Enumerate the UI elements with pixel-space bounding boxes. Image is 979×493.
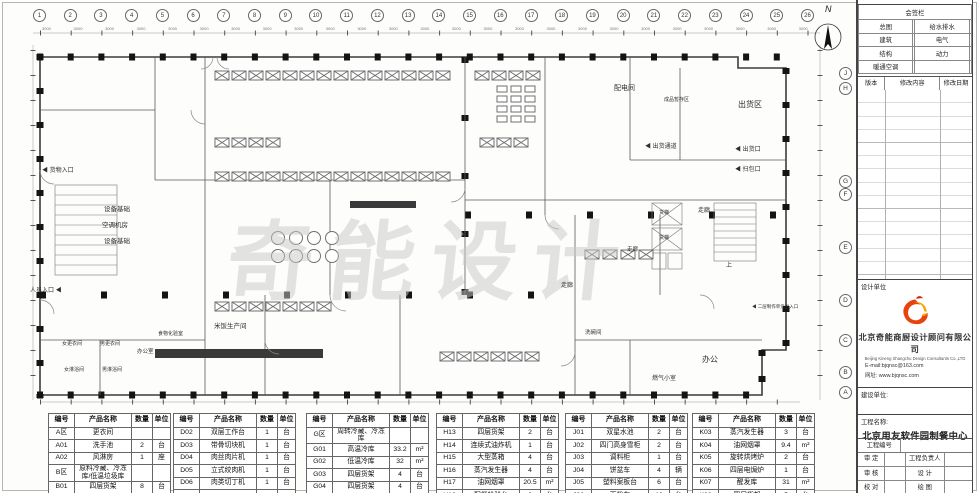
grid-bubble: 22 [678,9,691,22]
item-code: D06 [174,477,200,490]
design-unit-label: 设计单位 [858,280,972,291]
item-name: 高温冷库 [333,444,390,457]
grid-bubble: 12 [371,9,384,22]
item-unit: m² [411,456,429,469]
table-row: J06面粉车10台 [566,490,688,493]
grid-bubble: 2 [64,9,77,22]
item-unit: 台 [541,465,559,478]
item-name: 双星水池 [592,427,649,440]
item-qty: 4 [520,452,541,465]
project-label: 工程名称: [858,415,972,426]
item-code: D02 [174,427,200,440]
sign-label: 建筑 [859,33,913,47]
label-freight-lift-2: 货梯 [659,234,669,241]
dimension-label: 3000 [42,26,51,31]
col-header: 编号 [174,414,200,428]
sign-label [915,60,969,74]
equipment-table-5: 编号产品名称数量单位 J01双星水池2台J02四门高身雪柜2台J03调料柜1台J… [565,413,688,493]
label-equip-base-2: 设备基础 [104,235,130,245]
equipment-table-3: 编号产品名称数量单位 G区周转冷藏、冷冻库G01高温冷库33.2m²G02低温冷… [306,413,429,493]
item-unit: m² [797,440,815,453]
table-row: J05塑料案板台6台 [566,477,688,490]
item-unit: 台 [541,452,559,465]
item-unit: 台 [541,427,559,440]
col-header: 编号 [693,414,719,428]
item-qty [390,427,411,444]
item-name: 原料冷藏、冷冻库/低温垃圾库 [75,465,132,482]
table-row: D05立式绞肉机1台 [174,465,296,478]
item-name: 四层货架 [333,481,390,493]
stairs-upper [714,203,756,261]
item-name: 四门高身雪柜 [592,440,649,453]
item-qty: 3 [776,427,797,440]
item-unit: 台 [541,490,559,493]
table-row: A区更衣间 [49,427,171,440]
project-number-label: 工程编号 [858,439,901,452]
item-qty: 6 [649,477,670,490]
dimension-label: 3000 [168,26,177,31]
label-pickup-port: ◀ 扫包口 [735,164,761,173]
grid-bubble: 17 [525,9,538,22]
rev-col-date: 修改日期 [940,77,972,90]
stairs-lower [55,185,117,275]
item-name: 四层货架 [75,481,132,493]
design-label: 设 计 [906,467,945,482]
label-goods-entrance: ◀ 货物入口 [42,165,74,174]
item-unit: 台 [797,490,815,493]
item-name: 醒发库 [719,477,776,490]
table-row: H16蒸汽发生器4台 [437,465,559,478]
item-unit: 台 [670,440,688,453]
dimension-label: 3000 [326,26,335,31]
item-code: K08 [693,490,719,493]
item-name: 风淋房 [75,452,132,465]
table-row: J02四门高身雪柜2台 [566,440,688,453]
item-name: 饼盆车 [592,465,649,478]
grid-bubble: 18 [555,9,568,22]
dimension-label: 3000 [357,26,366,31]
label-shipping-port: ◀ 出货口 [735,144,761,153]
item-unit: 台 [670,427,688,440]
floor-plan-area: 奇能设计 12345678910111213141516171819202122… [0,0,855,410]
item-code: H16 [437,465,463,478]
item-unit: 台 [411,469,429,482]
dimension-label: 3000 [294,26,303,31]
item-qty [132,465,153,482]
col-header: 编号 [566,414,592,428]
item-qty: 1 [257,452,278,465]
item-qty: 32 [390,456,411,469]
item-qty: 8 [132,481,153,493]
item-unit: 台 [670,490,688,493]
sign-label: 动力 [915,47,969,61]
item-unit: 辆 [670,465,688,478]
label-men-shower: 男淋浴间 [102,366,122,373]
col-header: 编号 [307,414,333,428]
grid-letter-j: J [839,67,852,80]
item-code [174,490,200,493]
design-unit-section: 设计单位 北京奇能商厨设计顾问有限公司 Beijing Kineng Shang… [858,279,972,388]
dimension-label: 3000 [610,26,619,31]
item-name: 调料柜 [592,452,649,465]
item-qty: 2 [520,490,541,493]
col-header: 编号 [437,414,463,428]
item-unit: m² [411,444,429,457]
item-qty [132,427,153,440]
grid-letter-b: B [839,366,852,379]
table-row: K04油网烟罩9.4m² [693,440,815,453]
grid-bubbles-top: 1234567891011121314151617181920212223242… [33,9,814,22]
label-corridor-3: 走廊 [627,245,638,253]
dimension-label: 3000 [74,26,83,31]
item-qty: 4 [520,465,541,478]
item-name: 大型蒸箱 [463,452,520,465]
sign-label: 暖通空调 [859,60,913,74]
item-qty: 4 [390,469,411,482]
item-code: J03 [566,452,592,465]
item-unit [153,427,171,440]
item-unit [411,427,429,444]
dimension-label: 3000 [483,26,492,31]
grid-letter-h: H [839,82,852,95]
item-name [200,490,257,493]
label-gas-room: 燃气小室 [652,373,676,382]
item-qty: 1 [257,427,278,440]
table-row: A01洗手池2台 [49,440,171,453]
table-row: J04饼盆车4辆 [566,465,688,478]
item-unit: 台 [670,477,688,490]
dimension-label: 3000 [767,26,776,31]
item-code: K07 [693,477,719,490]
item-name: 旋转烘烤炉 [719,452,776,465]
grid-bubble: 21 [647,9,660,22]
item-unit [153,465,171,482]
item-qty: 1 [257,440,278,453]
item-unit: 台 [797,465,815,478]
item-unit: 台 [797,452,815,465]
item-qty: 4 [649,465,670,478]
grid-bubble: 10 [309,9,322,22]
item-code: G01 [307,444,333,457]
item-code: J02 [566,440,592,453]
item-name: 双层工作台 [200,427,257,440]
table-row: J01双星水池2台 [566,427,688,440]
dimension-label: 3000 [641,26,650,31]
grid-bubble: 14 [432,9,445,22]
table-row: A02风淋房1座 [49,452,171,465]
grid-letter-d: D [839,294,852,307]
table-row: D04肉丝肉片机1台 [174,452,296,465]
item-code: D04 [174,452,200,465]
item-code: D03 [174,440,200,453]
company-website: 网址: www.bjqnsc.com [858,371,972,379]
grid-bubble: 3 [94,9,107,22]
item-code: B区 [49,465,75,482]
item-unit: 台 [541,440,559,453]
item-unit: 台 [153,481,171,493]
item-unit: 台 [278,477,296,490]
item-code: K05 [693,452,719,465]
dimension-label: 3000 [547,26,556,31]
col-header: 产品名称 [719,414,776,428]
col-header: 数量 [776,414,797,428]
item-name: 四层货架 [463,427,520,440]
company-logo [896,294,934,330]
item-unit: 台 [278,465,296,478]
col-header: 单位 [797,414,815,428]
sign-label: 给水排水 [915,20,969,34]
item-name: 立式绞肉机 [200,465,257,478]
col-header: 单位 [153,414,171,428]
sign-label: 电气 [915,33,969,47]
table-row: H17油网烟罩20.5m² [437,477,559,490]
title-block: 会签栏 总图给水排水 建筑电气 结构动力 暖通空调 版本 修改内容 修改日期 设… [856,0,973,493]
item-qty [257,490,278,493]
grid-letter-g: G [839,175,852,188]
item-qty: 1 [776,465,797,478]
item-unit: m² [797,477,815,490]
item-code: H17 [437,477,463,490]
item-qty: 1 [257,477,278,490]
dimension-label: 3000 [736,26,745,31]
item-code: J04 [566,465,592,478]
table-row: B01四层货架8台 [49,481,171,493]
col-header: 单位 [670,414,688,428]
table-row: G04四层货架4台 [307,481,429,493]
item-code: G04 [307,481,333,493]
wash-line-machine [350,201,416,208]
item-name: 四层货架 [333,469,390,482]
col-header: 数量 [132,414,153,428]
label-stairs-up: 上 [726,260,732,269]
item-name: 连续式油炸机 [463,440,520,453]
label-unit-entrance: ◀ 二层制作单元出入口 [752,304,798,310]
table-row: H18配餐检验台2台 [437,490,559,493]
item-qty: 5 [776,490,797,493]
table-row: D03带骨切块机1台 [174,440,296,453]
item-code: H15 [437,452,463,465]
label-women-shower: 女淋浴间 [64,366,84,373]
grid-letter-f: F [839,188,852,201]
item-unit: 台 [278,452,296,465]
table-row: G区周转冷藏、冷冻库 [307,427,429,444]
item-qty: 10 [649,490,670,493]
item-qty: 1 [520,440,541,453]
item-qty: 9.4 [776,440,797,453]
item-name: 油网烟罩 [463,477,520,490]
label-equip-base-1: 设备基础 [104,203,130,213]
label-dish-wash: 洗碗间 [585,328,602,336]
item-qty: 1 [257,465,278,478]
grid-bubble: 1 [33,9,46,22]
label-office: 办公 [702,354,718,365]
item-code: H14 [437,440,463,453]
label-women-changing: 女更衣间 [62,340,82,347]
item-unit: 台 [278,440,296,453]
company-name-en: Beijing Kineng Shangchu Design Consultan… [858,356,972,361]
table-row: G03四层货架4台 [307,469,429,482]
col-header: 产品名称 [463,414,520,428]
table-row: B区原料冷藏、冷冻库/低温垃圾库 [49,465,171,482]
label-lab: 食物化验室 [158,330,183,337]
item-unit: 台 [153,440,171,453]
proof-label: 校 对 [858,481,885,493]
item-name: 塑料案板台 [592,477,649,490]
item-name: 四层货架 [719,490,776,493]
dimension-label: 3000 [515,26,524,31]
equipment-table-1: 编号产品名称数量单位 A区更衣间A01洗手池2台A02风淋房1座B区原料冷藏、冷… [48,413,171,493]
label-men-changing: 男更衣间 [100,340,120,347]
item-code: D05 [174,465,200,478]
pm-label: 工程负责人 [906,452,945,467]
table-row: K08四层货架5台 [693,490,815,493]
table-row: D06肉类切丁机1台 [174,477,296,490]
equipment-table-2: 编号产品名称数量单位 D02双层工作台1台D03带骨切块机1台D04肉丝肉片机1… [173,413,296,493]
item-unit: 座 [153,452,171,465]
item-unit: 台 [670,452,688,465]
item-code: J05 [566,477,592,490]
item-code: H18 [437,490,463,493]
item-code: K06 [693,465,719,478]
label-corridor-1: 走廊 [698,205,710,214]
grid-letter-a: A [839,386,852,399]
grid-bubble: 7 [217,9,230,22]
item-name: 洗手池 [75,440,132,453]
item-qty: 1 [649,452,670,465]
grid-bubble: 19 [586,9,599,22]
dimension-label: 3000 [673,26,682,31]
table-row: D02双层工作台1台 [174,427,296,440]
item-qty: 20.5 [520,477,541,490]
item-name: 蒸汽发生器 [463,465,520,478]
grid-bubble: 4 [125,9,138,22]
item-qty: 4 [390,481,411,493]
client-label: 建设单位: [858,388,972,399]
item-name: 配餐检验台 [463,490,520,493]
grid-bubble: 23 [709,9,722,22]
grid-letter-e: E [839,241,852,254]
table-row: H14连续式油炸机1台 [437,440,559,453]
item-qty: 31 [776,477,797,490]
responsibility-grid: 审 定 工程负责人 审 核 设 计 校 对 绘 图 [858,452,972,493]
col-header: 单位 [541,414,559,428]
dimension-label: 3000 [137,26,146,31]
item-qty: 33.2 [390,444,411,457]
item-unit: 台 [411,481,429,493]
sign-header: 会签栏 [859,5,972,20]
revision-header: 版本 修改内容 修改日期 [858,76,972,91]
label-power-room: 配电间 [614,83,635,93]
item-name: 蒸汽发生器 [719,427,776,440]
draw-label: 绘 图 [906,481,945,493]
equipment-table-6: 编号产品名称数量单位 K03蒸汽发生器3台K04油网烟罩9.4m²K05旋转烘烤… [692,413,815,493]
table-row: G01高温冷库33.2m² [307,444,429,457]
col-header: 数量 [649,414,670,428]
check-label: 审 核 [858,467,885,482]
label-rice-room: 米饭生产间 [214,320,247,330]
item-unit: m² [541,477,559,490]
col-header: 产品名称 [592,414,649,428]
item-code: G02 [307,456,333,469]
grid-bubble: 25 [770,9,783,22]
dimension-label: 3000 [263,26,272,31]
grid-bubble: 8 [248,9,261,22]
item-code: G区 [307,427,333,444]
item-code: H13 [437,427,463,440]
col-header: 产品名称 [333,414,390,428]
dimension-label: 3000 [704,26,713,31]
company-email: E-mail:bjqnsc@163.com [858,363,972,369]
label-office-2: 办公室 [137,347,154,355]
north-label: N [825,4,832,14]
grid-bubble: 9 [279,9,292,22]
dimension-label: 3000 [578,26,587,31]
grid-bubble: 15 [463,9,476,22]
item-qty: 2 [776,452,797,465]
col-header: 单位 [411,414,429,428]
project-section: 工程名称: 北京用友软件园制餐中心 [858,414,972,438]
col-header: 产品名称 [75,414,132,428]
item-code: A02 [49,452,75,465]
sign-label: 总图 [859,20,913,34]
door-swings [40,57,714,366]
item-code: K03 [693,427,719,440]
dimension-label: 3000 [231,26,240,31]
grid-bubble: 11 [340,9,353,22]
item-code: G03 [307,469,333,482]
item-qty: 2 [520,427,541,440]
item-name: 油网烟罩 [719,440,776,453]
table-row: H15大型蒸箱4台 [437,452,559,465]
dimension-label: 3000 [452,26,461,31]
item-qty: 2 [132,440,153,453]
item-code: A区 [49,427,75,440]
drawing-sheet: 奇能设计 12345678910111213141516171819202122… [0,0,979,493]
col-header: 数量 [520,414,541,428]
label-corridor-2: 走廊 [561,280,573,289]
signature-section: 会签栏 总图给水排水 建筑电气 结构动力 暖通空调 [858,4,972,74]
col-header: 数量 [257,414,278,428]
item-qty: 2 [649,440,670,453]
dimension-label: 3000 [420,26,429,31]
table-row: K07醒发库31m² [693,477,815,490]
approve-label: 审 定 [858,452,885,467]
label-shipping-area: 出货区 [738,99,762,110]
grid-bubble: 16 [494,9,507,22]
conveyor-machine [155,349,323,358]
equipment-table-4: 编号产品名称数量单位 H13四层货架2台H14连续式油炸机1台H15大型蒸箱4台… [436,413,559,493]
rev-col-content: 修改内容 [885,77,940,90]
grid-bubble: 20 [617,9,630,22]
company-name-cn: 北京奇能商厨设计顾问有限公司 [858,331,972,355]
item-name: 更衣间 [75,427,132,440]
item-code: J01 [566,427,592,440]
label-product-storage: 成品暂存区 [664,96,689,103]
col-header: 编号 [49,414,75,428]
table-row: K05旋转烘烤炉2台 [693,452,815,465]
col-header: 数量 [390,414,411,428]
grid-bubble: 24 [740,9,753,22]
item-code: K04 [693,440,719,453]
item-name: 肉类切丁机 [200,477,257,490]
table-row: K06四层电焗炉1台 [693,465,815,478]
rev-col-version: 版本 [858,77,885,90]
item-name: 四层电焗炉 [719,465,776,478]
label-personnel-entrance: 人员入口 ◀ [30,285,62,294]
client-section: 建设单位: [858,388,972,414]
item-name: 带骨切块机 [200,440,257,453]
item-name: 低温冷库 [333,456,390,469]
